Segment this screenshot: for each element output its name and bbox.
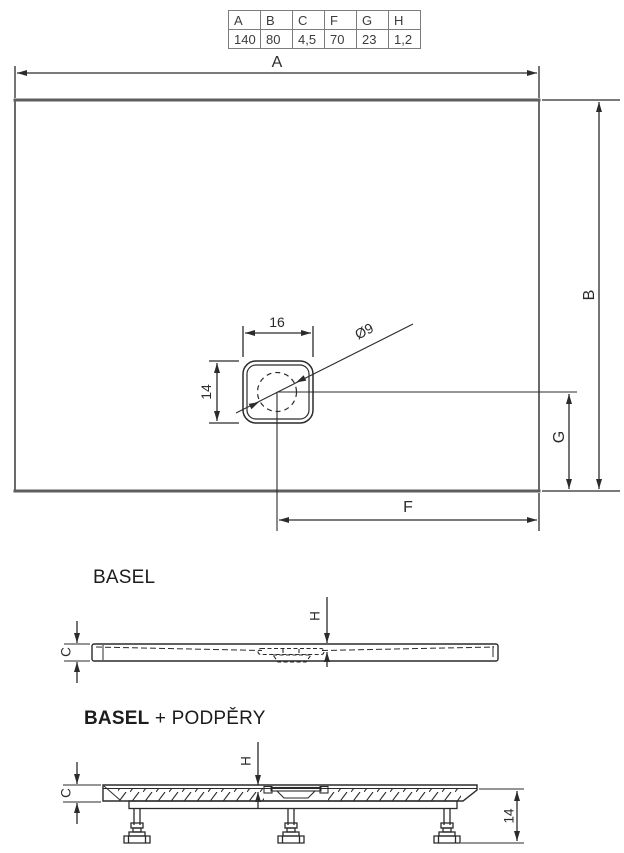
technical-drawing-page: A B C F G H 140 80 4,5 70 23 1,2	[0, 0, 624, 853]
drain-diameter-leader	[236, 324, 413, 413]
dim-label-h-basel: H	[308, 611, 322, 621]
dim-label-b: B	[582, 290, 598, 301]
dim-label-drain-height: 14	[199, 384, 213, 400]
dim-label-g: G	[552, 431, 568, 443]
dim-label-c-podpery: C	[59, 788, 73, 798]
dim-label-h-podpery: H	[239, 756, 253, 766]
support-side-view	[63, 742, 524, 843]
support-leg	[434, 809, 460, 844]
section-hatch-left	[118, 789, 264, 801]
basel-title: BASEL	[93, 567, 155, 589]
dim-label-drain-width: 16	[269, 315, 285, 329]
drain-detail	[209, 324, 413, 423]
podpery-title: BASEL + PODPĚRY	[84, 708, 266, 730]
tray-profile	[92, 644, 498, 661]
basel-side-view	[64, 597, 498, 683]
podpery-title-product: BASEL	[84, 708, 149, 729]
podpery-title-suffix: + PODPĚRY	[149, 708, 265, 729]
dim-label-a: A	[272, 55, 283, 71]
dim-label-leg-height: 14	[502, 808, 516, 823]
leader-arrowhead	[249, 402, 259, 409]
dim-label-f: F	[403, 500, 413, 516]
plan-view	[14, 66, 621, 531]
drain-trap-hidden	[258, 649, 324, 663]
dim-label-c-basel: C	[59, 647, 73, 657]
support-rail	[129, 801, 457, 809]
leader-arrowhead	[296, 375, 306, 382]
section-hatch-right	[328, 789, 461, 801]
support-leg	[278, 809, 304, 844]
support-leg	[124, 809, 150, 844]
